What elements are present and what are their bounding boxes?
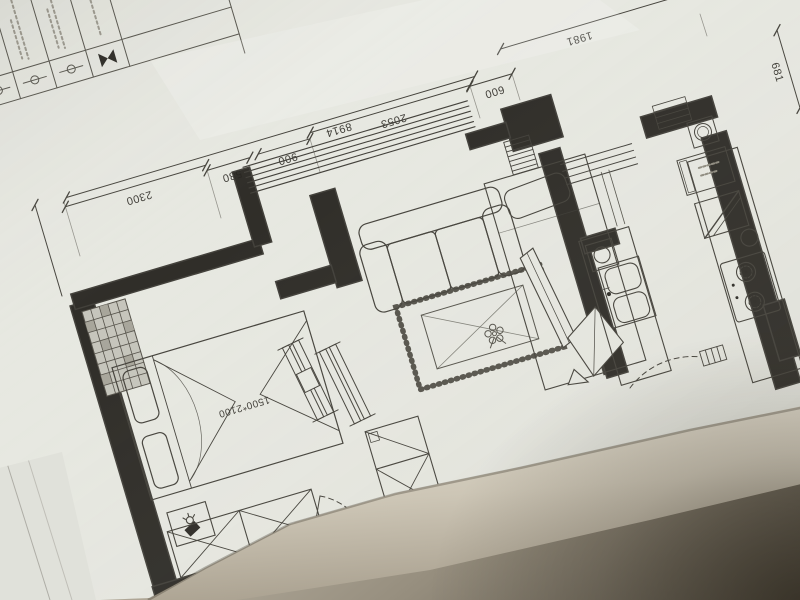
floorplan-photo-svg: 2300 580 900 8914 <box>0 0 800 600</box>
corner-shadow <box>430 330 800 600</box>
photo-of-floorplan: 2300 580 900 8914 <box>0 0 800 600</box>
